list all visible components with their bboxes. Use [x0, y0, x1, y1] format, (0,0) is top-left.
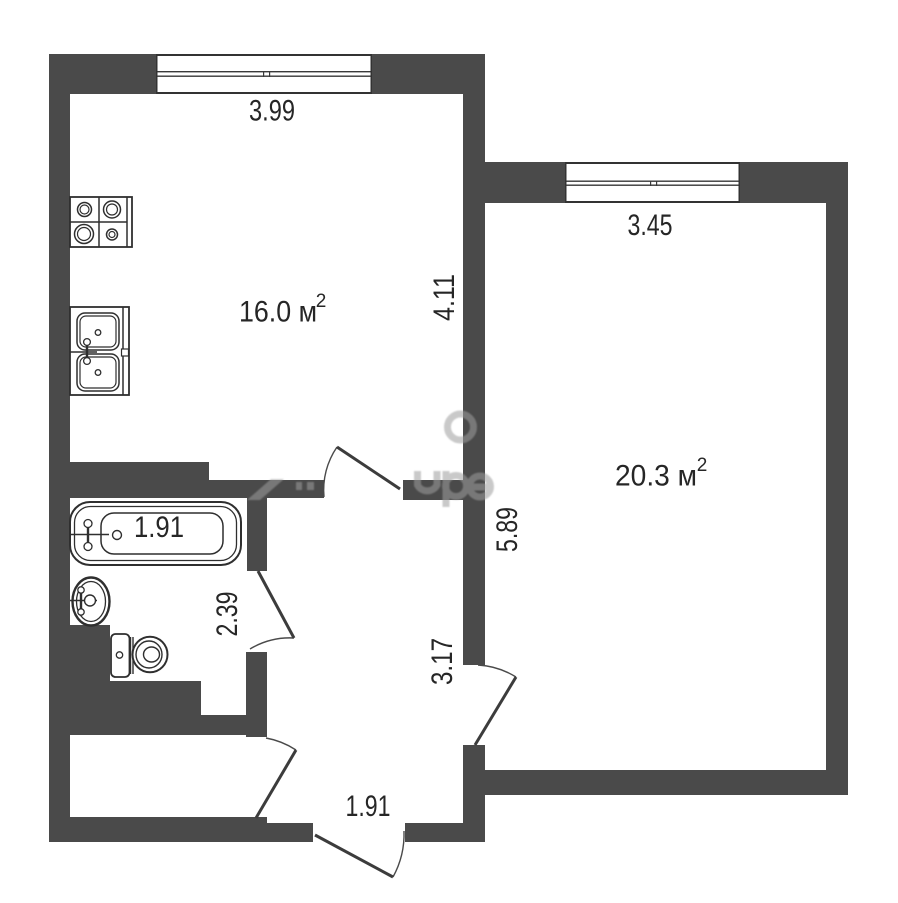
svg-text:2: 2	[697, 455, 708, 476]
svg-text:3.99: 3.99	[249, 95, 295, 128]
svg-text:3.45: 3.45	[628, 209, 673, 242]
svg-text:3.17: 3.17	[426, 638, 459, 685]
svg-text:2: 2	[316, 291, 327, 312]
svg-text:4.11: 4.11	[428, 274, 461, 321]
svg-text:2.39: 2.39	[211, 592, 244, 637]
svg-text:1.91: 1.91	[346, 790, 391, 823]
svg-text:20.3 м: 20.3 м	[615, 460, 697, 493]
svg-text:5.89: 5.89	[491, 507, 524, 552]
svg-text:1.91: 1.91	[134, 511, 184, 544]
svg-text:16.0 м: 16.0 м	[239, 296, 317, 329]
